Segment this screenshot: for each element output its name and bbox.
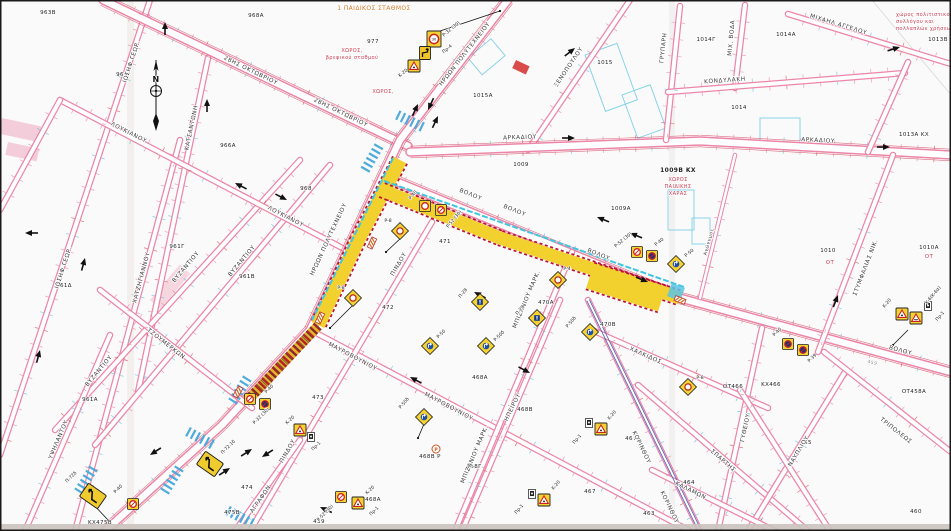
sign-circle — [397, 228, 403, 234]
lamp-light — [531, 493, 533, 495]
leader-dot — [385, 251, 387, 253]
traffic-sign-r52-icon — [128, 499, 139, 510]
traffic-sign-k20-icon — [352, 497, 364, 509]
block-label: ΚΧ466 — [761, 382, 781, 388]
sign-circle — [350, 295, 356, 301]
annotation: χώρος πολιτιστικού — [896, 11, 951, 18]
block-label: 1010Α — [919, 245, 939, 251]
block-label: 468Α — [365, 497, 381, 503]
block-label: 470Α — [538, 300, 554, 306]
block-label: 1014Α — [776, 32, 796, 38]
traffic-sign-k20-icon — [408, 60, 420, 72]
block-label: 1009 — [513, 162, 529, 168]
block-label: 471 — [439, 239, 451, 245]
traffic-sign-r52-icon — [436, 205, 447, 216]
traffic-sign-r52-icon — [245, 394, 256, 405]
traffic-sign-prohibition-icon — [420, 201, 431, 212]
block-label: 961Β — [239, 274, 255, 280]
sign-circle — [673, 261, 680, 268]
sign-circle — [427, 343, 434, 350]
north-letter: N — [152, 75, 159, 84]
street-label: ΑΡΚΑΔΙΟΥ — [503, 134, 537, 141]
block-label: ΟΤ458Α — [902, 389, 926, 395]
block-label: ΟΤ466 — [723, 384, 743, 390]
block-label: 468Β Ρ — [419, 454, 441, 460]
north-dot — [155, 90, 157, 92]
traffic-sign-k6-icon — [910, 312, 922, 324]
block-label: 475Β — [224, 510, 240, 516]
block-label: 968Α — [248, 13, 264, 19]
sign-circle — [421, 414, 428, 421]
map-canvas: 30Ρ963Β964968Α966Α968977961Γ961Β961Δ961Α… — [0, 0, 951, 531]
annotation: πολλαπλών χρήσεων — [896, 25, 951, 32]
block-label: 1010 — [820, 248, 836, 254]
sign-code-label: Ρ-8 — [696, 375, 703, 381]
block-label: 1015Α — [473, 93, 493, 99]
traffic-sign-k20-icon — [896, 308, 908, 320]
sign-works-glyph — [543, 501, 545, 503]
annotation: συλλόγου και — [896, 18, 934, 25]
annotation: 1 ΠΑΙΔΙΚΟΣ ΣΤΑΘΜΟΣ — [337, 5, 411, 12]
block-label: 467 — [584, 489, 596, 495]
annotation: 1009Β ΚΧ — [660, 167, 696, 174]
traffic-sign-r40-icon — [783, 339, 794, 350]
traffic-plan-map: 30Ρ963Β964968Α966Α968977961Γ961Β961Δ961Α… — [0, 0, 951, 531]
block-label: 468Α — [472, 375, 488, 381]
traffic-sign-r40-icon — [260, 399, 271, 410]
sign-circle — [685, 384, 691, 390]
block-label: 1009Α — [611, 206, 631, 212]
flashing-lamp-icon — [529, 490, 536, 499]
block-label: 968 — [300, 186, 312, 192]
block-label: 961Α — [82, 397, 98, 403]
sign-circle — [555, 277, 561, 283]
sign-code-label: Ρ-8 — [337, 285, 344, 291]
traffic-sign-r52-icon — [632, 247, 643, 258]
leader-dot — [499, 10, 501, 12]
lamp-light — [310, 436, 312, 438]
traffic-sign-r52-icon — [336, 492, 347, 503]
block-label: 463 — [643, 511, 655, 517]
annotation: ΟΤ — [826, 260, 835, 266]
traffic-sign-r40-icon — [798, 345, 809, 356]
traffic-sign-k20-icon — [294, 424, 306, 436]
flashing-lamp-icon — [586, 419, 593, 428]
annotation: ΧΩΡΟΣ, — [372, 89, 393, 95]
sign-works-glyph — [413, 67, 415, 69]
sign-code-label: Ρ-4 — [563, 266, 570, 272]
sign-code-label: Ρ-8 — [384, 218, 391, 224]
traffic-sign-r40-icon — [647, 251, 658, 262]
block-label: 1014 — [731, 105, 747, 111]
block-label: 963Β — [40, 10, 56, 16]
leader-dot — [417, 437, 419, 439]
annotation: ΧΩΡΟΣ — [668, 177, 687, 183]
sign-works-glyph — [357, 504, 359, 506]
block-label: 1013Β — [928, 37, 948, 43]
traffic-sign-k20-icon — [595, 423, 607, 435]
block-label: 1013Α ΚΧ — [899, 132, 929, 138]
annotation: ΧΑΡΑΣ — [669, 191, 687, 197]
leader-dot — [329, 327, 331, 329]
annotation: ΠΑΙΔΙΚΗΣ — [665, 184, 692, 190]
block-label: 460 — [910, 509, 922, 515]
sign-works-glyph — [299, 431, 301, 433]
annotation: ΟΤ — [925, 254, 934, 260]
sign-circle — [422, 203, 429, 210]
block-label: 470Β — [600, 322, 616, 328]
block-label: 474 — [241, 485, 253, 491]
sign-works-glyph — [600, 430, 602, 432]
block-label: 468Β — [517, 407, 533, 413]
block-label: 472 — [382, 305, 394, 311]
sign-30-text: 30 — [432, 38, 437, 42]
sign-works-glyph — [901, 315, 903, 317]
block-label: 473 — [312, 395, 324, 401]
sign-circle — [587, 329, 594, 336]
block-label: 966Α — [220, 143, 236, 149]
sign-circle — [483, 343, 490, 350]
block-label: 961Γ — [169, 244, 185, 250]
block-label: 977 — [367, 39, 379, 45]
annotation: βρεφικού σταθμού — [326, 54, 379, 61]
annotation: ΧΩΡΟΣ, — [341, 48, 362, 54]
lamp-light — [588, 422, 590, 424]
block-label: 1014Γ — [696, 37, 716, 43]
block-label: 1015 — [597, 60, 613, 66]
traffic-sign-detour-board-icon — [420, 47, 431, 60]
flashing-lamp-icon — [308, 433, 315, 442]
traffic-sign-k20-icon — [538, 494, 550, 506]
